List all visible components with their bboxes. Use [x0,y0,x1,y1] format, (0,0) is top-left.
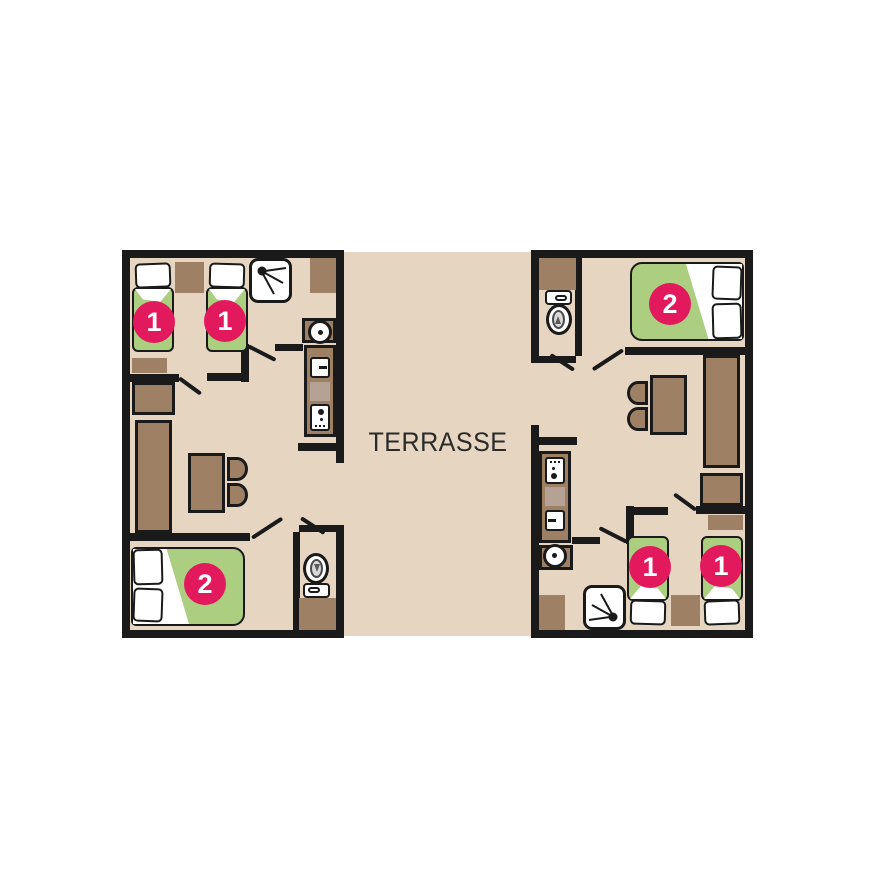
wall-right-upper [531,425,539,638]
toilet-tank [303,583,330,598]
shower-icon [585,587,622,626]
stove [545,457,565,484]
wall-kitchen-stub [539,437,577,445]
wall-bottom [531,250,753,258]
wall-right-lower [531,250,539,363]
pillow [712,303,743,340]
capacity-badge: 1 [204,300,246,342]
sink-counter [302,318,336,343]
wall-bathroom-stub [572,537,600,544]
toilet-tank [545,290,572,305]
shower [583,585,626,630]
worktop [545,487,565,506]
shower-icon [253,262,290,301]
wall-bottom [122,630,344,638]
wall-left [122,250,130,638]
wall-bedroom2 [625,347,753,355]
wall-top [531,630,753,638]
capacity-badge: 1 [629,546,671,588]
toilet-icon [546,304,572,335]
capacity-badge: 2 [649,283,691,325]
kitchen-block [304,345,336,437]
shower [249,258,292,303]
unit-left: 1 1 [122,250,344,638]
terrace-label: TERRASSE [343,427,533,458]
wall-kitchen-stub [298,443,336,451]
dresser [132,358,167,373]
nightstand [671,595,700,626]
capacity-badge: 1 [700,545,742,587]
screen: TERRASSE [0,0,886,886]
wc-cabinet [539,258,576,290]
wall-bedroom2 [122,533,250,541]
chair [627,381,648,405]
wall-wc-left [575,252,582,356]
wardrobe [539,595,565,630]
wall-right-upper [336,250,344,463]
pillow [704,599,741,625]
kitchen-block [539,451,571,543]
pillow [133,549,164,586]
unit-right: 1 1 [531,250,753,638]
sink-counter [539,545,573,570]
dining-table [650,375,687,435]
wall-bedroom1-left [696,506,753,514]
wardrobe [700,473,743,506]
pillow [132,587,163,622]
pillow [630,600,667,626]
stove [310,404,330,431]
wc-cabinet [299,598,336,630]
dining-table [188,453,225,513]
worktop [310,382,330,401]
chair [627,407,648,431]
pillow [711,265,742,300]
capacity-badge: 2 [184,563,226,605]
wardrobe [310,258,336,293]
dresser [708,515,743,530]
wardrobe [132,382,175,415]
wall-bathroom-stub [275,344,303,351]
wall-bedroom1-left [122,374,179,382]
wall-left [745,250,753,638]
pillow [135,262,172,288]
terrace: TERRASSE [336,252,540,636]
capacity-badge: 1 [133,301,175,343]
sofa [703,355,740,468]
floor-plan: TERRASSE [0,0,886,886]
pillow [209,263,246,289]
fridge [545,510,565,531]
sofa [135,420,172,533]
wall-top [122,250,344,258]
nightstand [175,262,204,293]
toilet-icon [303,553,329,584]
fridge [310,357,330,378]
wall-right-lower [336,525,344,638]
